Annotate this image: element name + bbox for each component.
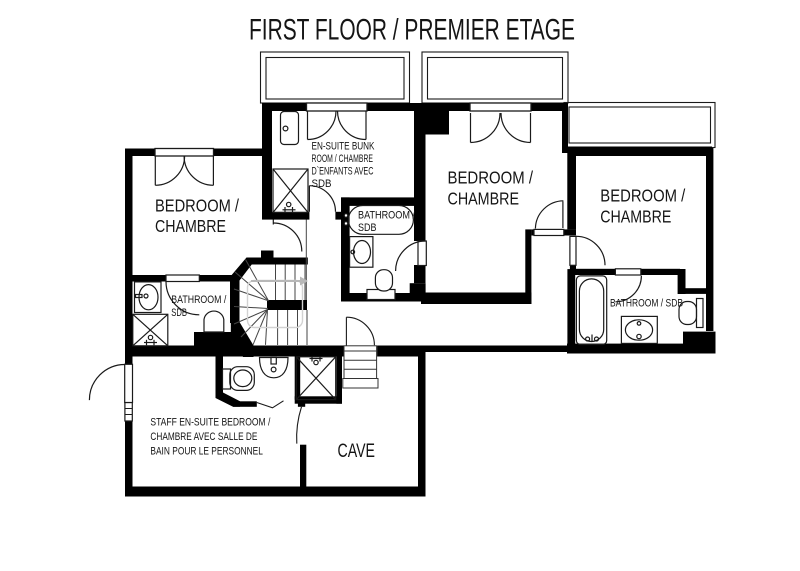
svg-text:BATHROOM / SDB: BATHROOM / SDB (610, 297, 683, 309)
svg-text:BEDROOM /: BEDROOM / (600, 186, 685, 206)
svg-text:SDB: SDB (312, 178, 332, 190)
svg-text:BEDROOM /: BEDROOM / (155, 196, 239, 216)
svg-text:BEDROOM /: BEDROOM / (448, 168, 534, 188)
svg-text:SDB: SDB (171, 307, 187, 319)
svg-text:CHAMBRE: CHAMBRE (448, 189, 520, 209)
svg-text:BATHROOM /: BATHROOM / (358, 210, 415, 222)
svg-text:CHAMBRE: CHAMBRE (600, 207, 671, 227)
svg-text:FIRST FLOOR / PREMIER ETAGE: FIRST FLOOR / PREMIER ETAGE (249, 14, 575, 47)
svg-text:SDB: SDB (358, 222, 377, 234)
svg-text:STAFF EN-SUITE BEDROOM /: STAFF EN-SUITE BEDROOM / (150, 416, 270, 428)
svg-text:D`ENFANTS AVEC: D`ENFANTS AVEC (312, 166, 374, 178)
svg-text:CHAMBRE: CHAMBRE (155, 216, 226, 236)
svg-text:CAVE: CAVE (338, 440, 376, 462)
svg-text:BAIN POUR LE PERSONNEL: BAIN POUR LE PERSONNEL (150, 445, 263, 457)
svg-text:ROOM / CHAMBRE: ROOM / CHAMBRE (312, 153, 374, 165)
svg-text:EN-SUITE BUNK: EN-SUITE BUNK (312, 140, 376, 152)
svg-text:BATHROOM /: BATHROOM / (171, 294, 226, 306)
svg-text:CHAMBRE AVEC SALLE DE: CHAMBRE AVEC SALLE DE (150, 431, 257, 443)
